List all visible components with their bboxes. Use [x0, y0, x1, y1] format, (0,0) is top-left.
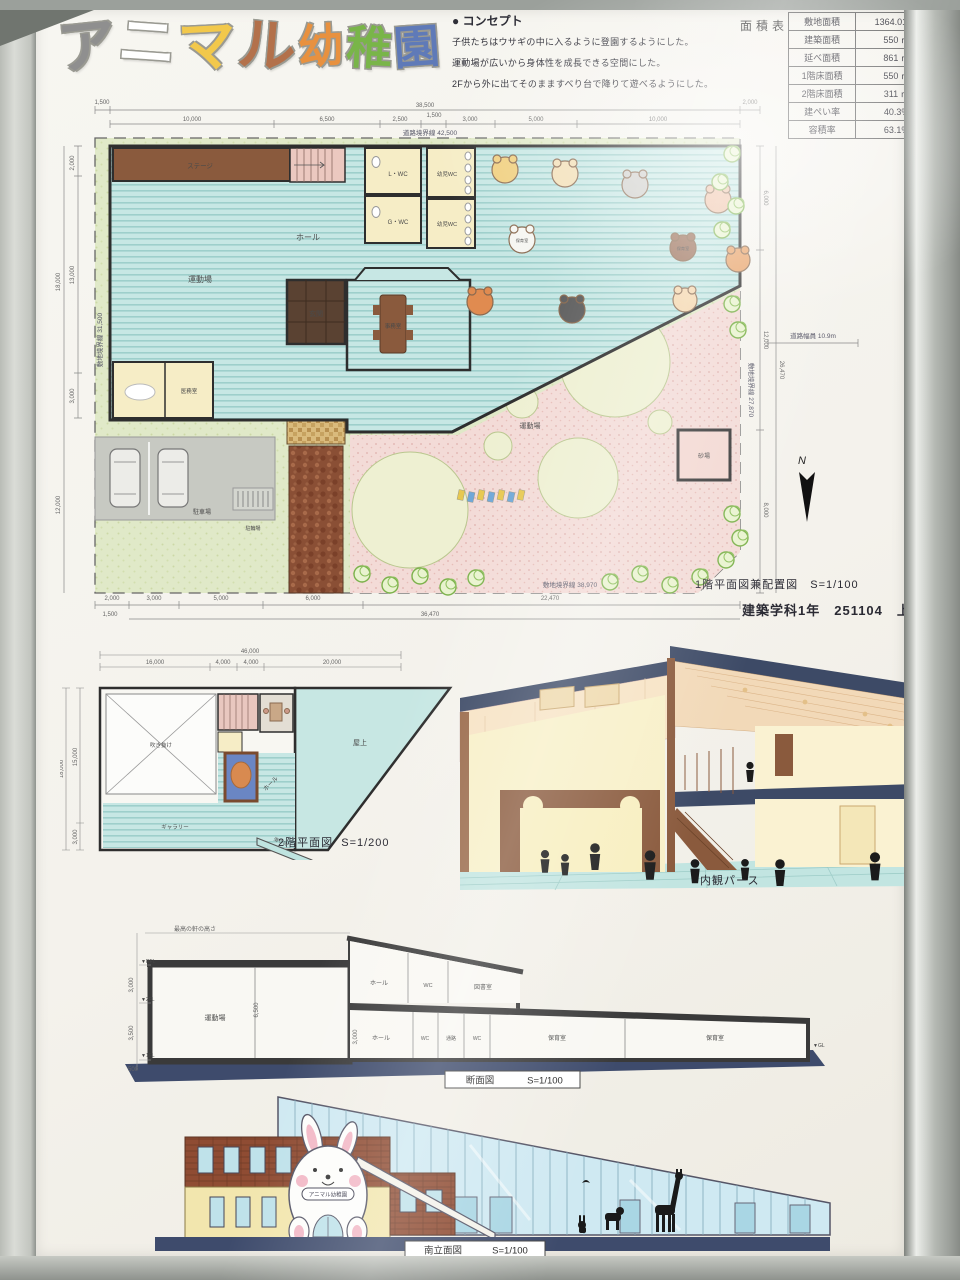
svg-text:ホール: ホール: [370, 980, 388, 987]
kids-wc-rooms: 幼児WC 幼児WC: [427, 148, 475, 248]
svg-text:敷地境界線 27,870: 敷地境界線 27,870: [747, 363, 756, 418]
medical-rooms: 医務室: [113, 362, 213, 418]
svg-text:6,000: 6,000: [305, 596, 321, 602]
kids-wc-label: 幼児WC: [437, 170, 457, 178]
svg-text:▼2FL: ▼2FL: [141, 997, 155, 1003]
title-char: 幼: [297, 18, 347, 75]
svg-text:2,000: 2,000: [742, 100, 758, 106]
hall-label: ホール: [296, 233, 320, 242]
stage-label: ステージ: [187, 162, 213, 170]
svg-text:1,500: 1,500: [94, 100, 110, 106]
svg-text:3,000: 3,000: [146, 596, 162, 602]
svg-text:5,000: 5,000: [528, 117, 544, 123]
sandbox-label: 砂場: [698, 452, 710, 460]
ladies-wc-label: L・WC: [388, 172, 408, 178]
svg-text:2,500: 2,500: [392, 117, 408, 123]
svg-text:10,000: 10,000: [183, 117, 202, 123]
left-hall-volume: [460, 660, 675, 872]
gents-wc-label: G・WC: [388, 220, 409, 226]
playground-label: 運動場: [520, 421, 541, 430]
svg-text:3,000: 3,000: [70, 388, 76, 404]
wc-rooms: L・WC G・WC: [365, 148, 421, 243]
library-room: [225, 753, 257, 801]
svg-text:▼GL: ▼GL: [813, 1043, 825, 1049]
svg-text:36,470: 36,470: [421, 612, 440, 618]
second-floor-plan: 46,000 16,000 4,000 4,000 20,000 18,000 …: [60, 645, 460, 860]
title-char: ル: [235, 10, 301, 85]
roof-deck: 屋上: [295, 688, 450, 850]
title-char: 園: [392, 18, 444, 76]
svg-text:12,000: 12,000: [56, 495, 62, 514]
svg-text:6,500: 6,500: [319, 117, 335, 123]
nursery-label: 保育室: [516, 237, 529, 244]
svg-text:12,000: 12,000: [762, 331, 768, 350]
dim-label: 46,000: [241, 649, 260, 655]
svg-text:6,500: 6,500: [254, 1002, 260, 1018]
concept-line: 子供たちはウサギの中に入るように登園するようにした。: [452, 35, 752, 48]
office-label: 事務室: [385, 322, 402, 330]
second-floor-rooms: 吹き抜け ホール ギャラリー: [100, 688, 295, 850]
svg-text:1,500: 1,500: [102, 612, 118, 618]
dim-label: 4,000: [215, 660, 231, 666]
dim-label: 4,000: [243, 660, 259, 666]
plan1f-caption: 1階平面図兼配置図 S=1/100: [695, 576, 859, 592]
staircase: [290, 148, 345, 182]
concept-heading: ● コンセプト: [452, 12, 752, 29]
frame-top-edge: [0, 0, 960, 10]
svg-text:図書室: 図書室: [474, 983, 492, 991]
svg-text:WC: WC: [423, 983, 432, 989]
svg-text:3,000: 3,000: [129, 977, 135, 993]
concept-line: 2Fから外に出てそのまますべり台で降りて遊べるようにした。: [452, 77, 752, 90]
medical-label: 医務室: [181, 387, 198, 395]
svg-text:運動場: 運動場: [205, 1013, 226, 1022]
svg-text:2,000: 2,000: [70, 155, 76, 171]
svg-text:WC: WC: [421, 1036, 430, 1042]
frame-left-edge: [0, 0, 36, 1280]
svg-text:S=1/100: S=1/100: [492, 1246, 528, 1257]
title-char: マ: [176, 10, 240, 83]
svg-text:13,000: 13,000: [70, 265, 76, 284]
staircase: [667, 808, 737, 870]
svg-text:500: 500: [128, 1067, 139, 1073]
svg-text:道路幅員 10.9m: 道路幅員 10.9m: [790, 331, 836, 340]
concept-line: 運動場が広いから身体性を成長できる空間にした。: [452, 56, 752, 69]
section-drawing: 運動場 ホール WC 図書室 ホール WC 通路 WC 保育室 保育室 6,50…: [125, 925, 855, 1097]
sandbox: 砂場: [678, 430, 730, 480]
svg-text:WC: WC: [473, 1036, 482, 1042]
parking-area: 駐車場 駐輪場: [95, 437, 275, 532]
dim-label: 16,000: [146, 660, 165, 666]
svg-text:敷地境界線 38,970: 敷地境界線 38,970: [543, 580, 598, 589]
svg-text:通路: 通路: [446, 1035, 456, 1042]
svg-text:▼1FL: ▼1FL: [141, 1053, 155, 1059]
gallery-label: ギャラリー: [161, 824, 189, 831]
title-char: ニ: [116, 6, 181, 80]
first-floor-site-plan: 運動場 砂場 ステージ 運動場 ホール: [50, 90, 910, 638]
svg-text:6,000: 6,000: [762, 190, 768, 206]
concept-block: ● コンセプト 子供たちはウサギの中に入るように登園するようにした。 運動場が広…: [452, 12, 752, 98]
dim-label: 20,000: [323, 660, 342, 666]
svg-text:18,000: 18,000: [56, 272, 62, 291]
entrance-sign: アニマル幼稚園: [302, 1188, 354, 1200]
title-char: 稚: [345, 20, 396, 78]
entrance: 玄関: [287, 280, 345, 344]
area-table-title: 面積表: [740, 17, 788, 34]
perspective-caption: 内観パース: [700, 872, 759, 888]
svg-text:5,000: 5,000: [213, 596, 229, 602]
dim-label: 3,000: [73, 829, 79, 845]
entrance-label: 玄関: [309, 309, 323, 318]
stage-proscenium: [500, 790, 660, 872]
frame-right-edge: [904, 0, 960, 1280]
svg-text:22,470: 22,470: [541, 596, 560, 602]
svg-text:3,000: 3,000: [353, 1029, 359, 1045]
svg-text:38,500: 38,500: [416, 103, 435, 109]
interior-perspective: [445, 640, 935, 892]
frame-bottom-edge: [0, 1256, 960, 1280]
svg-text:3,500: 3,500: [129, 1025, 135, 1041]
parking-label: 駐車場: [193, 508, 211, 516]
svg-text:ホール: ホール: [372, 1035, 390, 1042]
svg-text:1,500: 1,500: [426, 113, 442, 119]
south-elevation: アニマル幼稚園 南立面図 S=1/100: [150, 1085, 840, 1270]
section-building: [147, 938, 810, 1062]
svg-text:3,000: 3,000: [462, 117, 478, 123]
kids-wc-label: 幼児WC: [437, 220, 457, 228]
svg-text:保育室: 保育室: [706, 1034, 724, 1042]
svg-text:▼RFL: ▼RFL: [141, 959, 156, 965]
dim-label: 15,000: [73, 747, 79, 766]
svg-text:道路境界線 42,500: 道路境界線 42,500: [403, 128, 458, 137]
svg-text:10,000: 10,000: [649, 117, 668, 123]
column: [667, 658, 675, 872]
right-volume: [667, 646, 915, 872]
framed-presentation-board-photo: アニマル幼稚園 ● コンセプト 子供たちはウサギの中に入るように登園するようにし…: [0, 0, 960, 1280]
svg-text:2,000: 2,000: [104, 596, 120, 602]
svg-text:N: N: [798, 455, 806, 467]
bicycle-label: 駐輪場: [245, 525, 260, 532]
svg-text:8,000: 8,000: [762, 502, 768, 518]
dim-label: 18,000: [60, 759, 65, 778]
gym-label: 運動場: [188, 274, 212, 284]
svg-text:最高の軒の高さ: 最高の軒の高さ: [174, 925, 216, 933]
north-arrow: N: [798, 455, 815, 522]
svg-text:敷地境界線 31,500: 敷地境界線 31,500: [95, 313, 104, 368]
svg-text:保育室: 保育室: [548, 1034, 566, 1042]
svg-text:南立面図: 南立面図: [424, 1245, 462, 1257]
plan2f-caption: 2階平面図 S=1/200: [278, 834, 390, 850]
roof-label: 屋上: [353, 738, 367, 747]
svg-text:26,470: 26,470: [778, 361, 784, 380]
poster-title: アニマル幼稚園: [58, 12, 478, 82]
void-area: 吹き抜け: [106, 694, 216, 794]
nursery-label: 保育室: [677, 245, 690, 252]
void-label: 吹き抜け: [150, 741, 173, 749]
svg-text:アニマル幼稚園: アニマル幼稚園: [309, 1191, 348, 1199]
wc: [218, 732, 242, 752]
